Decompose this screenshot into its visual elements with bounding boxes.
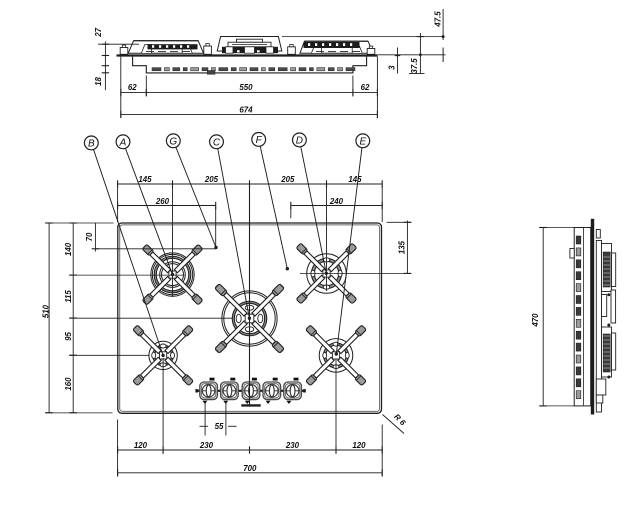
svg-text:145: 145: [138, 175, 152, 184]
svg-text:D: D: [296, 136, 303, 147]
svg-text:160: 160: [64, 377, 73, 391]
svg-text:135: 135: [398, 240, 407, 254]
svg-text:37.5: 37.5: [410, 58, 419, 74]
svg-text:205: 205: [204, 175, 219, 184]
svg-text:120: 120: [352, 441, 366, 450]
svg-text:A: A: [119, 137, 127, 148]
svg-text:230: 230: [285, 441, 300, 450]
svg-text:700: 700: [243, 464, 257, 473]
svg-text:G: G: [169, 136, 177, 147]
svg-text:140: 140: [64, 242, 73, 256]
svg-text:260: 260: [155, 197, 170, 206]
svg-text:C: C: [213, 137, 221, 148]
svg-text:95: 95: [64, 332, 73, 341]
svg-text:120: 120: [134, 441, 148, 450]
svg-text:47.5: 47.5: [434, 11, 443, 28]
svg-text:E: E: [359, 136, 366, 147]
svg-text:3: 3: [387, 65, 396, 70]
svg-text:62: 62: [361, 83, 370, 92]
svg-text:18: 18: [94, 77, 103, 86]
svg-text:62: 62: [128, 83, 137, 92]
svg-text:145: 145: [348, 175, 362, 184]
svg-text:55: 55: [215, 422, 224, 431]
svg-text:510: 510: [41, 304, 50, 318]
svg-text:470: 470: [531, 313, 540, 328]
svg-text:550: 550: [239, 83, 253, 92]
svg-text:240: 240: [329, 197, 344, 206]
svg-text:205: 205: [280, 175, 295, 184]
svg-text:B: B: [88, 139, 95, 150]
svg-text:115: 115: [64, 290, 73, 303]
svg-text:230: 230: [199, 441, 214, 450]
svg-text:F: F: [256, 135, 263, 146]
svg-text:674: 674: [239, 106, 253, 115]
svg-text:70: 70: [85, 232, 94, 241]
svg-text:27: 27: [94, 27, 103, 37]
